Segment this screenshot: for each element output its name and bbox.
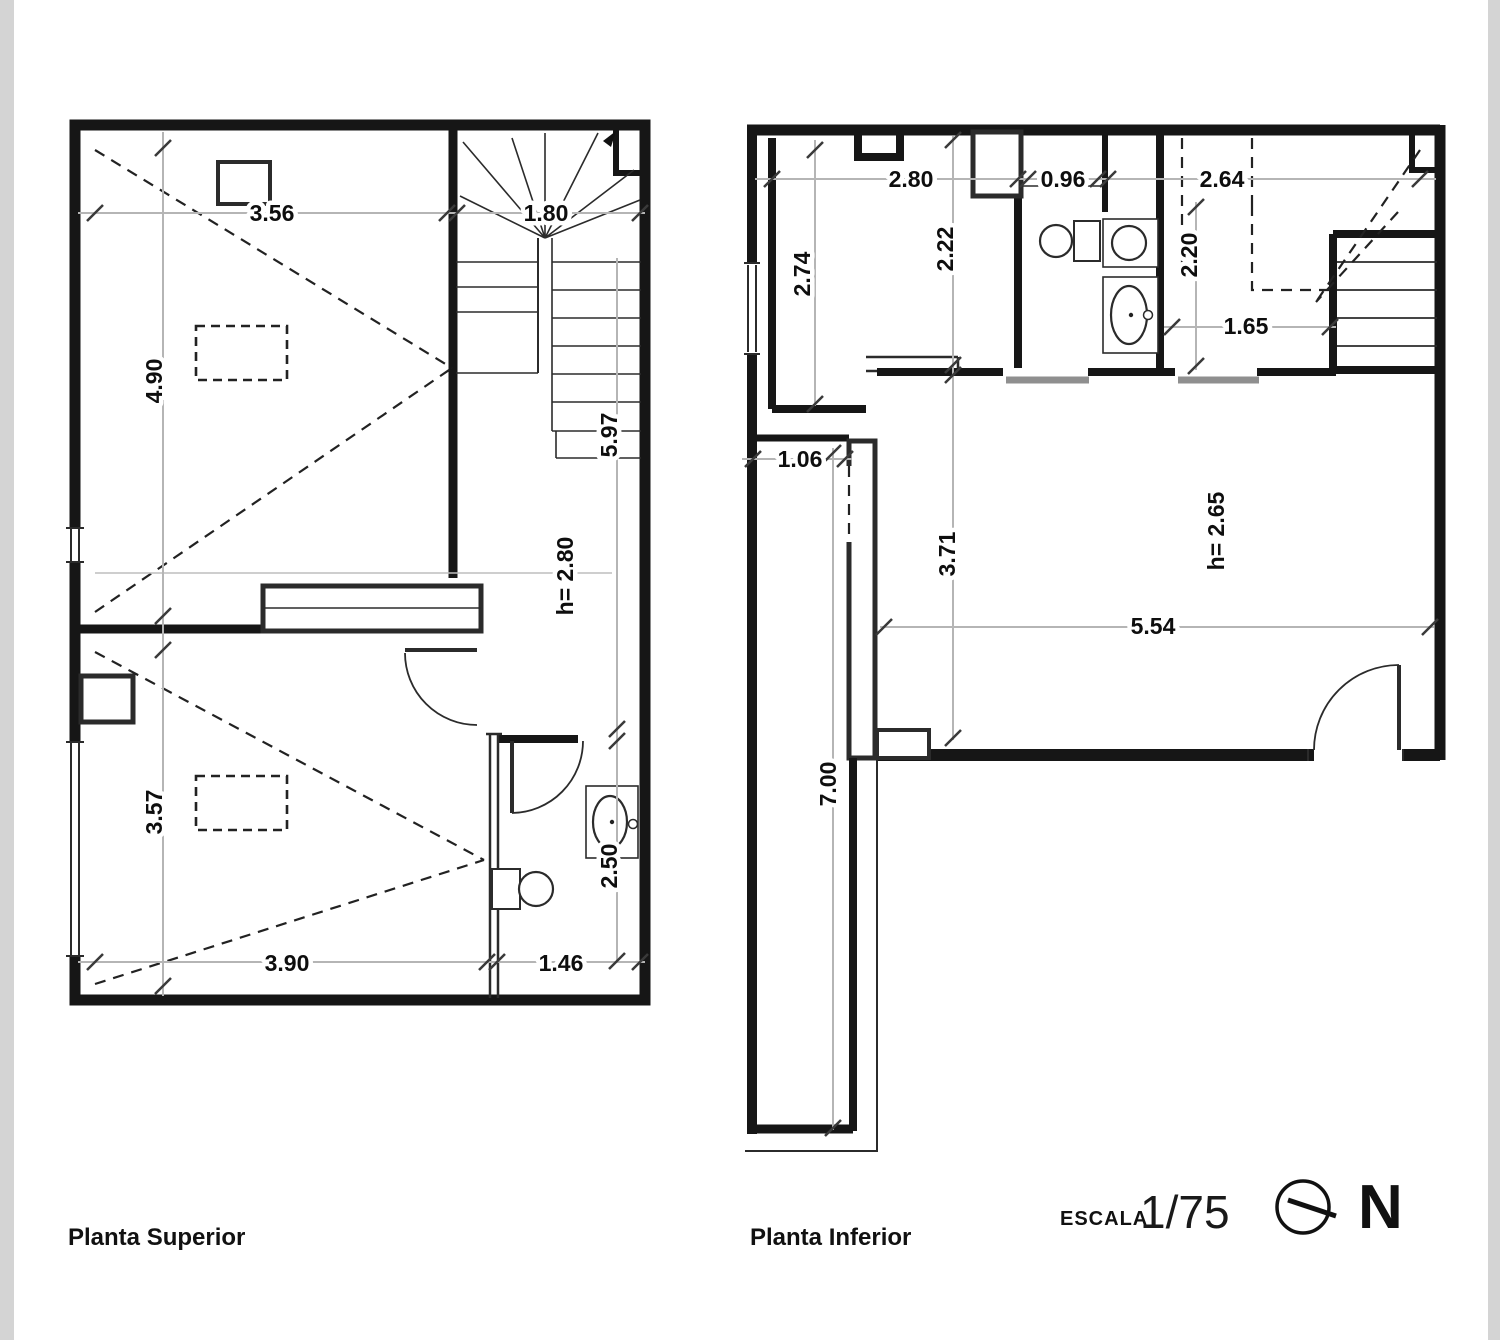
ceiling-height-superior: h= 2.80: [552, 537, 578, 616]
dim-inf-living-depth: 3.71: [934, 531, 960, 576]
north-compass-icon: [1277, 1181, 1336, 1233]
dim-sup-bath-depth: 2.50: [596, 844, 622, 889]
dim-sup-bath-width: 1.46: [539, 950, 584, 976]
dim-sup-stair-run: 5.97: [596, 413, 622, 458]
dashed-annotations-superior: [95, 150, 612, 984]
plan-inferior: 2.80 0.96 2.64 2.74 2.22 2.20 1.65 1.06 …: [742, 125, 1440, 1151]
toilet-icon: [1074, 221, 1100, 261]
plan-title-inferior: Planta Inferior: [750, 1224, 911, 1251]
dashed-annotations-inferior: [1182, 138, 1420, 302]
scale-label: ESCALA: [1060, 1208, 1148, 1230]
doors-superior: [405, 650, 583, 813]
dim-inf-kitchen-width: 2.80: [889, 166, 934, 192]
stairs-superior: [456, 131, 641, 458]
plan-title-superior: Planta Superior: [68, 1224, 245, 1251]
dim-inf-terrace-length: 7.00: [815, 762, 841, 807]
dim-sup-top-width: 3.56: [250, 200, 295, 226]
fixtures-inferior: [1040, 219, 1158, 353]
dim-inf-living-width: 5.54: [1131, 613, 1176, 639]
floorplan-sheet: 3.56 1.80 4.90 5.97 h= 2.80 3.57 2.50 3.…: [0, 0, 1500, 1340]
dim-inf-wc-width: 0.96: [1041, 166, 1086, 192]
dim-inf-entry-depth: 2.22: [932, 227, 958, 272]
dim-sup-stair-width: 1.80: [524, 200, 569, 226]
entry-door-inferior: [1314, 665, 1399, 750]
plan-superior: 3.56 1.80 4.90 5.97 h= 2.80 3.57 2.50 3.…: [66, 125, 648, 1000]
floorplan-drawing: 3.56 1.80 4.90 5.97 h= 2.80 3.57 2.50 3.…: [0, 0, 1500, 1340]
dim-inf-bedroom-width: 2.64: [1200, 166, 1245, 192]
dim-inf-kitchen-depth: 2.74: [789, 251, 815, 296]
scale-value: 1/75: [1140, 1186, 1230, 1238]
dim-sup-lower-height: 3.57: [141, 790, 167, 835]
dim-inf-terrace-width: 1.06: [778, 446, 823, 472]
dim-sup-lower-width: 3.90: [265, 950, 310, 976]
scale-block: ESCALA 1/75: [1060, 1186, 1230, 1238]
north-label: N: [1358, 1173, 1403, 1242]
dim-sup-upper-height: 4.90: [141, 359, 167, 404]
ceiling-height-inferior: h= 2.65: [1203, 491, 1229, 570]
stairs-inferior: [1333, 234, 1437, 371]
toilet-icon: [492, 869, 520, 909]
dim-inf-hall-depth: 2.20: [1176, 233, 1202, 278]
dim-inf-hall-width: 1.65: [1224, 313, 1269, 339]
